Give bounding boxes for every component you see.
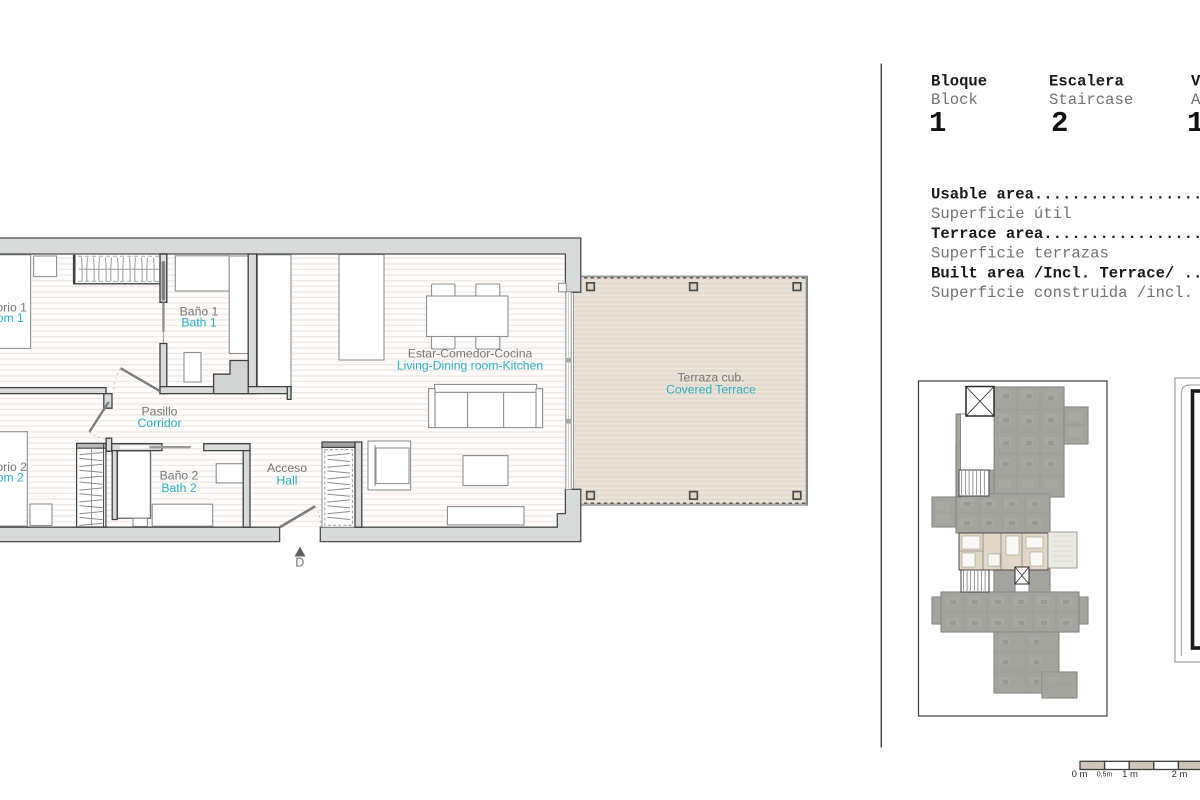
svg-text:0,5m: 0,5m: [1097, 772, 1113, 779]
svg-text:Bloque: Bloque: [931, 73, 987, 91]
svg-text:Terrace area..................: Terrace area..................: [931, 225, 1200, 243]
svg-text:Bedroom 2: Bedroom 2: [0, 471, 24, 485]
svg-text:Hall: Hall: [277, 474, 298, 488]
svg-text:Corridor: Corridor: [137, 416, 181, 430]
svg-text:1: 1: [1187, 107, 1200, 140]
svg-text:Escalera: Escalera: [1049, 73, 1124, 91]
svg-text:Superficie útil: Superficie útil: [931, 205, 1071, 223]
svg-text:0 m: 0 m: [1072, 769, 1088, 780]
svg-text:1 m: 1 m: [1122, 769, 1138, 780]
svg-text:1: 1: [929, 107, 946, 140]
svg-text:D: D: [295, 555, 304, 569]
svg-text:Vivienda: Vivienda: [1191, 73, 1200, 91]
svg-text:Bedroom 1: Bedroom 1: [0, 311, 24, 325]
svg-text:2 m: 2 m: [1172, 769, 1188, 780]
svg-text:Bath 1: Bath 1: [181, 316, 216, 330]
svg-text:Covered Terrace: Covered Terrace: [666, 383, 756, 397]
svg-text:Built area /Incl. Terrace/ ...: Built area /Incl. Terrace/ ......: [931, 264, 1200, 282]
svg-text:2: 2: [1051, 107, 1068, 140]
svg-text:Bath 2: Bath 2: [161, 481, 196, 495]
svg-text:Living-Dining room-Kitchen: Living-Dining room-Kitchen: [397, 359, 543, 373]
svg-text:Superficie terrazas: Superficie terrazas: [931, 245, 1109, 263]
svg-text:Usable area...................: Usable area...................: [931, 186, 1200, 204]
svg-text:Superficie construida /incl. t: Superficie construida /incl. terraza: [931, 284, 1200, 302]
